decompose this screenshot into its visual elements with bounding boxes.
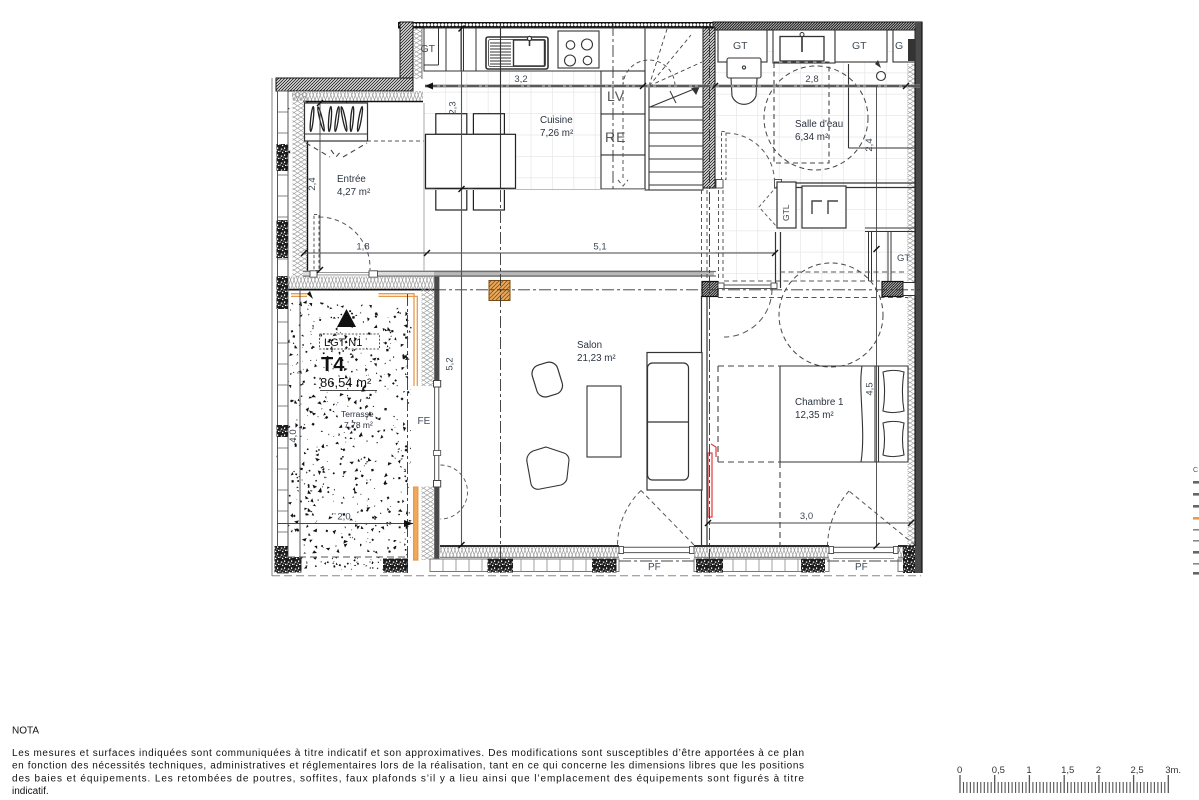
svg-text:1,8: 1,8 bbox=[356, 242, 369, 253]
svg-text:GTL: GTL bbox=[781, 204, 791, 221]
svg-text:5,2: 5,2 bbox=[445, 357, 456, 370]
svg-text:86,54 m²: 86,54 m² bbox=[320, 375, 372, 390]
svg-text:2,8: 2,8 bbox=[805, 74, 818, 85]
svg-text:0: 0 bbox=[957, 765, 962, 776]
svg-text:4,5: 4,5 bbox=[865, 382, 876, 395]
svg-text:C: C bbox=[1193, 467, 1198, 474]
svg-text:Chambre 1: Chambre 1 bbox=[795, 397, 843, 408]
svg-text:4,27 m²: 4,27 m² bbox=[337, 187, 371, 198]
svg-text:2,4: 2,4 bbox=[864, 138, 875, 151]
svg-text:21,23 m²: 21,23 m² bbox=[577, 353, 616, 364]
svg-text:T4: T4 bbox=[321, 354, 345, 376]
svg-text:LV: LV bbox=[607, 88, 625, 104]
svg-text:NOTA: NOTA bbox=[12, 726, 39, 737]
svg-text:indicatif.: indicatif. bbox=[12, 786, 49, 797]
svg-text:Salle d'eau: Salle d'eau bbox=[795, 119, 843, 130]
svg-text:4,0: 4,0 bbox=[288, 429, 299, 442]
svg-text:6,34 m²: 6,34 m² bbox=[795, 132, 829, 143]
svg-text:Entrée: Entrée bbox=[337, 174, 366, 185]
svg-text:2: 2 bbox=[1096, 765, 1101, 776]
svg-text:2,5: 2,5 bbox=[1131, 765, 1144, 776]
svg-text:GT: GT bbox=[421, 43, 436, 55]
svg-text:Terrasse: Terrasse bbox=[341, 409, 374, 419]
svg-text:FE: FE bbox=[418, 416, 431, 427]
svg-text:2,0: 2,0 bbox=[337, 512, 350, 523]
svg-text:3,2: 3,2 bbox=[514, 74, 527, 85]
svg-text:Salon: Salon bbox=[577, 340, 602, 351]
svg-text:1,5: 1,5 bbox=[1061, 765, 1074, 776]
svg-text:GT: GT bbox=[897, 253, 910, 264]
svg-text:2,3: 2,3 bbox=[448, 101, 459, 114]
svg-text:2,4: 2,4 bbox=[307, 177, 318, 190]
svg-text:5,1: 5,1 bbox=[593, 242, 606, 253]
svg-text:7,26 m²: 7,26 m² bbox=[540, 128, 574, 139]
svg-text:Les mesures et surfaces indiqu: Les mesures et surfaces indiquées sont c… bbox=[12, 748, 804, 759]
svg-text:LGT N1: LGT N1 bbox=[324, 337, 362, 349]
svg-text:0,5: 0,5 bbox=[992, 765, 1005, 776]
svg-text:Cuisine: Cuisine bbox=[540, 115, 573, 126]
svg-text:12,35 m²: 12,35 m² bbox=[795, 410, 834, 421]
svg-text:en fonction des nécessités tec: en fonction des nécessités techniques, a… bbox=[12, 761, 804, 772]
svg-text:des baies et équipements. Les: des baies et équipements. Les retombées … bbox=[12, 773, 804, 784]
svg-text:3,0: 3,0 bbox=[800, 511, 813, 522]
svg-text:3m.: 3m. bbox=[1165, 765, 1181, 776]
svg-text:G: G bbox=[895, 40, 903, 52]
svg-text:PF: PF bbox=[648, 562, 661, 573]
svg-text:1: 1 bbox=[1026, 765, 1031, 776]
svg-text:GT: GT bbox=[852, 40, 867, 52]
svg-text:7,78 m²: 7,78 m² bbox=[344, 420, 373, 430]
svg-text:PF: PF bbox=[855, 562, 868, 573]
svg-text:GT: GT bbox=[733, 40, 748, 52]
